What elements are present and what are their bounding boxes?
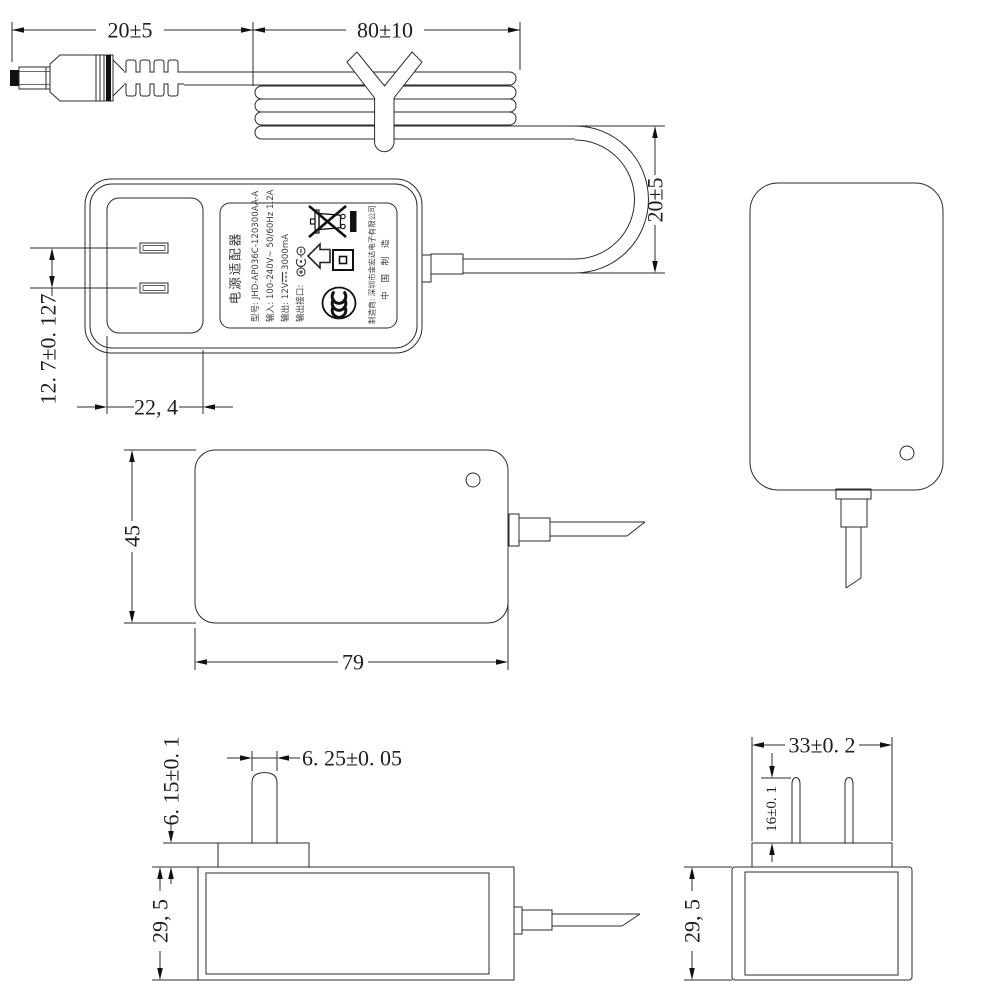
cord-dimensions: 20±5 80±10 xyxy=(12,18,520,87)
dim-prong-length: 16±0. 1 xyxy=(764,786,780,832)
label-title: 电源适配器 xyxy=(228,232,243,305)
weee-bin-icon xyxy=(309,206,357,237)
prong xyxy=(252,773,277,844)
cable-tie xyxy=(347,52,422,152)
label-input: 输入: 100-240V~ 50/60Hz 1.2A xyxy=(264,189,276,322)
cord-loop-outer xyxy=(575,126,648,273)
front-cable-exit xyxy=(422,254,575,282)
prong-length-dimension: 16±0. 1 xyxy=(761,753,791,862)
bottom-view-end: 33±0. 2 16±0. 1 29, 5 xyxy=(680,733,913,981)
prong-pitch-dimension: 12. 7±0. 127 xyxy=(30,248,137,405)
dim-base-width: 33±0. 2 xyxy=(788,733,855,758)
body-outline xyxy=(750,183,943,490)
prong-slot xyxy=(140,283,168,293)
dim-cord-plug-length: 20±5 xyxy=(107,18,152,43)
dim-base-height: 6. 15±0. 1 xyxy=(159,736,184,825)
back-view-portrait xyxy=(750,183,943,588)
ccc-mark-icon xyxy=(323,288,356,319)
connector-tip xyxy=(10,70,19,86)
dim-prong-pitch: 12. 7±0. 127 xyxy=(36,293,61,404)
height-dimension: 45 xyxy=(120,450,197,623)
dim-depth-side: 29, 5 xyxy=(148,899,173,943)
prong xyxy=(845,778,853,844)
dim-prong-width: 6. 25±0. 05 xyxy=(302,746,402,771)
prong-slot xyxy=(140,243,168,253)
base-height-dimension: 6. 15±0. 1 xyxy=(152,736,228,884)
label-manufacturer: 制造商: 深圳市金宏达电子有限公司 xyxy=(367,205,377,324)
vent-hole xyxy=(900,446,914,460)
label-output-current: 3000mA xyxy=(281,234,291,270)
dim-loop-height: 20±5 xyxy=(643,177,668,222)
recess-width-dimension: 22, 4 xyxy=(77,336,233,420)
back-view-landscape: 45 79 xyxy=(120,450,646,675)
dc-symbol-icon xyxy=(283,272,287,282)
length-dimension: 79 xyxy=(195,550,508,675)
prong xyxy=(792,778,800,844)
rating-label-content: 电源适配器 型号: JHD-AP036C-120300AA-A 输入: 100-… xyxy=(228,189,392,324)
dim-depth-end: 29, 5 xyxy=(680,899,705,943)
label-model: 型号: JHD-AP036C-120300AA-A xyxy=(250,191,261,322)
front-view: 电源适配器 型号: JHD-AP036C-120300AA-A 输入: 100-… xyxy=(30,179,575,420)
bottom-view-side: 6. 25±0. 05 6. 15±0. 1 29, 5 xyxy=(148,736,641,980)
loop-height-dimension: 20±5 xyxy=(575,126,668,273)
body-outline xyxy=(198,867,514,980)
cord-loop-inner xyxy=(575,140,635,259)
indoor-use-icon xyxy=(308,244,330,268)
dc-connector xyxy=(10,55,184,101)
body-outline xyxy=(732,867,912,980)
vent-hole xyxy=(466,473,480,487)
label-output: 输出: 12V xyxy=(279,282,291,322)
dim-cord-coil-length: 80±10 xyxy=(357,18,413,43)
class-ii-icon xyxy=(333,250,353,270)
body-outline xyxy=(195,450,508,623)
plug-base xyxy=(218,843,309,867)
plug-recess xyxy=(107,198,203,333)
technical-drawing: 20±5 80±10 20±5 xyxy=(0,0,1000,1000)
depth-dimension-left: 29, 5 xyxy=(148,867,199,980)
dim-body-height: 45 xyxy=(120,525,145,547)
adapter-drawing-svg: 20±5 80±10 20±5 xyxy=(0,0,1000,1000)
label-port: 输出接口: xyxy=(294,285,306,322)
dim-body-length: 79 xyxy=(342,650,364,675)
label-origin: 中 国 制 造 xyxy=(379,236,391,300)
depth-dimension-right: 29, 5 xyxy=(680,867,733,980)
dim-recess-width: 22, 4 xyxy=(134,395,178,420)
strain-relief xyxy=(124,60,184,72)
polarity-icon xyxy=(296,247,305,276)
prong-width-dimension: 6. 25±0. 05 xyxy=(227,746,402,772)
